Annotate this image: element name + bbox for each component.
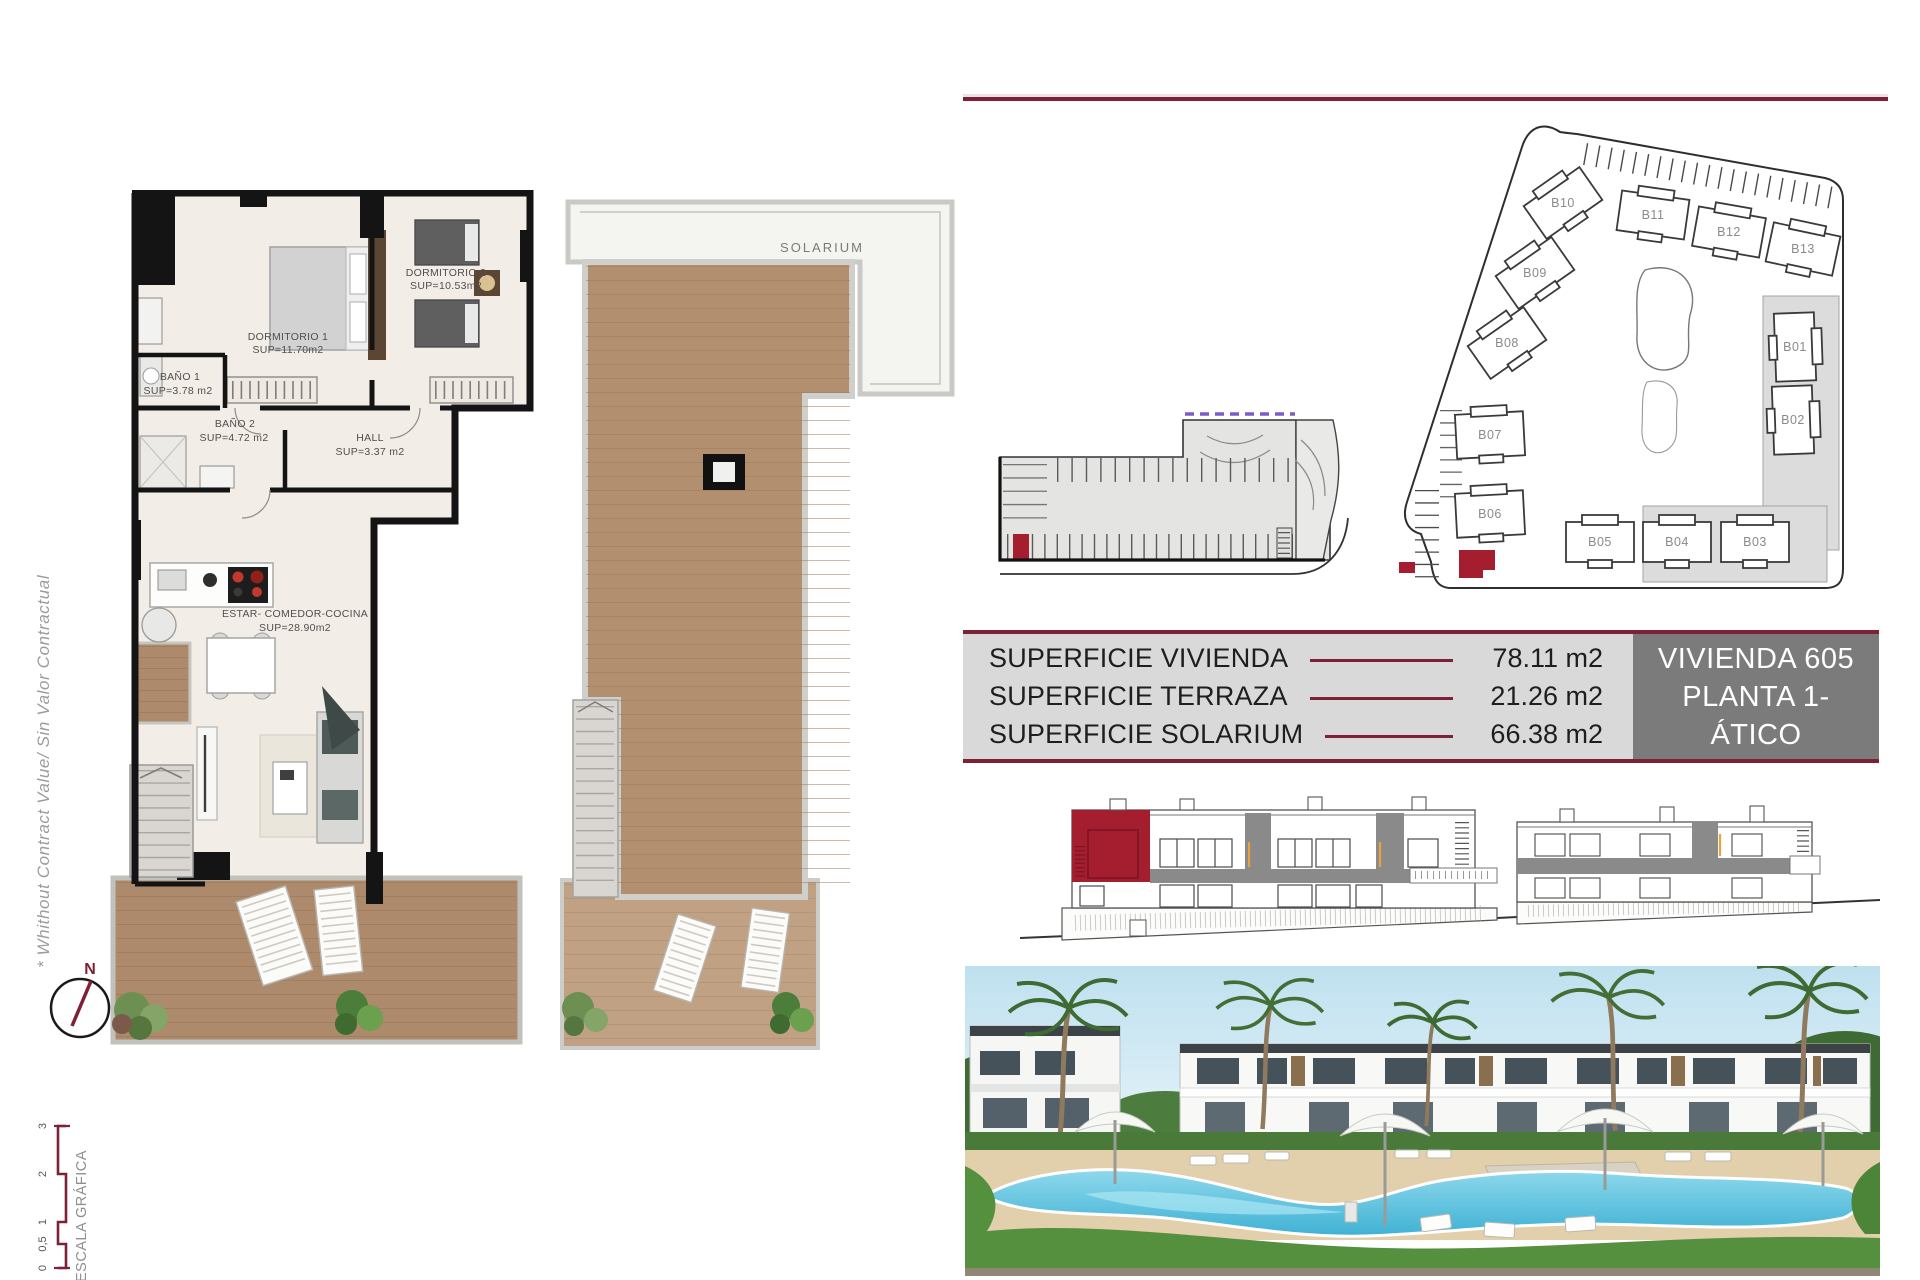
leader-line — [1310, 659, 1453, 662]
pool-ladder — [1345, 1202, 1357, 1222]
bldg-label-b04: B04 — [1665, 535, 1689, 549]
room-sup-dormitorio2: SUP=10.53m2 — [410, 280, 482, 292]
room-label-hall: HALL — [356, 432, 383, 444]
room-label-estar: ESTAR- COMEDOR-COCINA — [222, 608, 368, 620]
scale-tick-2: 2 — [37, 1161, 49, 1187]
solarium-stairs — [573, 700, 618, 897]
bldg-label-b10: B10 — [1551, 196, 1575, 210]
bldg-label-b08: B08 — [1495, 336, 1519, 350]
bldg-label-b05: B05 — [1588, 535, 1612, 549]
compass-n-label: N — [84, 961, 96, 978]
garage-plan — [995, 400, 1395, 605]
pond-2 — [1642, 381, 1677, 453]
side-balcony — [136, 643, 190, 723]
photo-bottom-edge — [965, 1268, 1880, 1276]
scale-tick-3: 3 — [37, 1113, 49, 1139]
bldg-label-b02: B02 — [1781, 413, 1805, 427]
room-sup-bano1: SUP=3.78 m2 — [144, 385, 213, 397]
room-sup-hall: SUP=3.37 m2 — [336, 446, 405, 458]
bldg-label-b06: B06 — [1478, 507, 1502, 521]
elevation-left — [1062, 797, 1497, 940]
chimneys-right — [1560, 806, 1764, 822]
compass: N — [42, 960, 120, 1040]
utility-round — [142, 608, 176, 642]
townhouse-row — [1180, 1044, 1870, 1139]
ext-stairs — [1130, 920, 1146, 936]
bldg-label-b12: B12 — [1717, 225, 1741, 239]
bldg-label-b11: B11 — [1642, 208, 1665, 222]
room-label-bano2: BAÑO 2 — [215, 417, 255, 430]
wardrobe-dorm2 — [430, 377, 513, 403]
leader-line — [1325, 735, 1453, 738]
pool-render — [965, 966, 1880, 1276]
surface-value: 21.26 m2 — [1475, 681, 1603, 712]
leader-line — [1310, 697, 1453, 700]
scale-zigzag — [58, 1126, 66, 1268]
compass-needle-icon — [72, 981, 91, 1026]
chimneys-left — [1110, 797, 1426, 810]
pond — [1637, 268, 1693, 370]
apartment-floor-plan: DORMITORIO 1 SUP=11.70m2 DORMITORIO 2 SU… — [110, 190, 535, 1060]
stairs — [130, 765, 193, 877]
highlighted-storage — [1013, 534, 1029, 559]
bldg-label-b09: B09 — [1523, 266, 1547, 280]
surface-label: SUPERFICIE VIVIENDA — [989, 643, 1288, 674]
main-deck — [585, 262, 852, 897]
terrace-deck — [113, 852, 520, 1042]
dining-table — [207, 633, 275, 699]
highlighted-parking — [1399, 562, 1415, 573]
scale-title: ESCALA GRÁFICA — [74, 1146, 90, 1280]
surface-label: SUPERFICIE TERRAZA — [989, 681, 1288, 712]
bldg-label-b01: B01 — [1783, 340, 1807, 354]
unit-id-panel: VIVIENDA 605 PLANTA 1- ÁTICO — [1633, 634, 1879, 759]
unit-floor: PLANTA 1- ÁTICO — [1633, 678, 1879, 754]
graphic-scale-bar — [48, 1118, 76, 1280]
table-row: SUPERFICIE VIVIENDA 78.11 m2 — [989, 643, 1603, 674]
kitchen-counter — [150, 563, 273, 607]
unit-name: VIVIENDA 605 — [1658, 640, 1854, 678]
building-elevations — [1020, 782, 1880, 977]
terrace-lounger-2 — [314, 886, 363, 976]
bldg-label-b03: B03 — [1743, 535, 1767, 549]
elevation-right — [1517, 806, 1820, 924]
scale-tick-05: 0,5 — [37, 1231, 49, 1257]
brochure-page: * Whithout Contract Value/ Sin Valor Con… — [0, 0, 1920, 1280]
scale-tick-0: 0 — [37, 1255, 49, 1280]
bldg-label-b07: B07 — [1478, 428, 1502, 442]
room-label-dormitorio2: DORMITORIO 2 — [406, 267, 486, 279]
solarium-label: SOLARIUM — [780, 240, 864, 255]
room-sup-bano2: SUP=4.72 m2 — [200, 432, 269, 444]
table-row: SUPERFICIE TERRAZA 21.26 m2 — [989, 681, 1603, 712]
room-sup-estar: SUP=28.90m2 — [259, 622, 331, 634]
header-rule-line — [963, 97, 1888, 101]
header-rule — [963, 94, 1888, 101]
surface-value: 78.11 m2 — [1475, 643, 1603, 674]
surface-rows: SUPERFICIE VIVIENDA 78.11 m2 SUPERFICIE … — [963, 634, 1633, 759]
wardrobe-dorm1 — [227, 377, 317, 403]
surface-label: SUPERFICIE SOLARIUM — [989, 719, 1303, 750]
scale-endcaps — [54, 1126, 70, 1268]
room-label-dormitorio1: DORMITORIO 1 — [248, 331, 328, 343]
surface-value: 66.38 m2 — [1475, 719, 1603, 750]
surface-summary-table: SUPERFICIE VIVIENDA 78.11 m2 SUPERFICIE … — [963, 630, 1879, 763]
solarium-plan: SOLARIUM — [560, 196, 960, 1056]
site-plan: B10 B11 B12 B13 B09 B08 B07 B06 B05 B04 … — [1395, 110, 1910, 615]
table-row: SUPERFICIE SOLARIUM 66.38 m2 — [989, 719, 1603, 750]
room-label-bano1: BAÑO 1 — [160, 370, 200, 383]
disclaimer-note: * Whithout Contract Value/ Sin Valor Con… — [34, 556, 54, 968]
room-sup-dormitorio1: SUP=11.70m2 — [252, 344, 323, 356]
bldg-label-b13: B13 — [1791, 242, 1815, 256]
